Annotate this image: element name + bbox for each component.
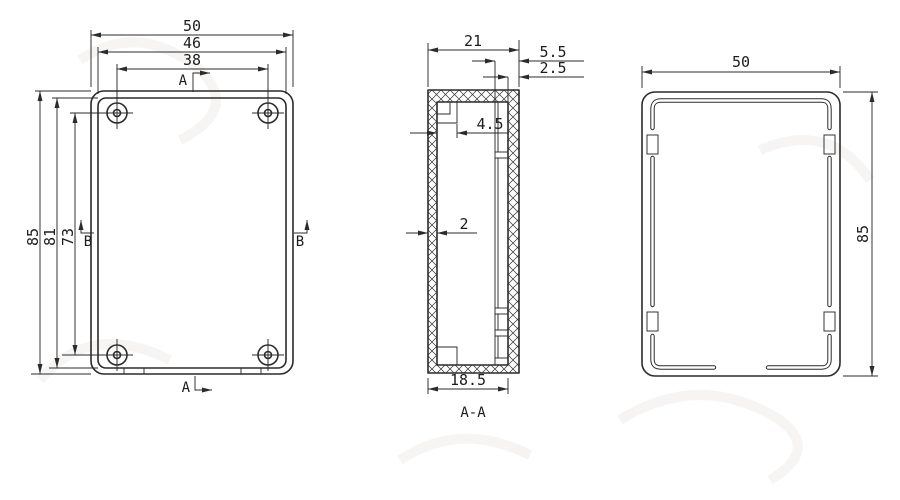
dim-value-2: 2 — [459, 215, 468, 233]
dim-value-85: 85 — [24, 228, 42, 246]
section-marker-b-left: B — [81, 220, 94, 250]
section-lip-wall — [495, 102, 498, 358]
dim-value-73: 73 — [59, 228, 77, 246]
section-letter: A — [179, 73, 188, 89]
section-boss-top — [437, 102, 457, 123]
front-bottom-ribs — [124, 368, 261, 374]
drawing-svg: 50 46 38 85 81 73 — [0, 0, 900, 500]
section-marker-a-bottom: A — [182, 376, 212, 396]
dim-side-height: 85 — [843, 92, 878, 376]
section-title: A-A — [460, 405, 486, 421]
dim-section-front-wall: 2 — [406, 215, 477, 233]
side-view: 50 85 — [642, 53, 878, 376]
side-outer-outline — [642, 92, 840, 376]
dim-value-46: 46 — [183, 34, 201, 52]
dim-section-depth: 21 — [428, 32, 519, 87]
screw-hole-bottom-right — [252, 339, 284, 371]
dim-value-38: 38 — [183, 51, 201, 69]
dim-value-81: 81 — [41, 228, 59, 246]
watermark-pattern — [40, 42, 870, 480]
dim-value-50: 50 — [183, 17, 201, 35]
dim-value-50: 50 — [732, 53, 750, 71]
section-letter: B — [84, 234, 92, 250]
dim-value-85: 85 — [854, 225, 872, 243]
section-letter: B — [296, 234, 304, 250]
section-outer-outline — [428, 90, 519, 373]
technical-drawing-canvas: 50 46 38 85 81 73 — [0, 0, 900, 500]
dim-section-boss-width: 4.5 — [410, 115, 509, 138]
dim-section-inner-depth: 18.5 — [428, 371, 508, 394]
section-boss-bottom — [437, 347, 457, 365]
section-cavity-outline — [437, 102, 508, 365]
section-letter: A — [182, 380, 191, 396]
screw-hole-top-right — [252, 64, 284, 129]
dim-side-width: 50 — [642, 53, 840, 88]
dim-value-2-5: 2.5 — [539, 59, 566, 77]
side-clip-windows — [647, 135, 835, 331]
dim-value-21: 21 — [464, 32, 482, 50]
section-lip-connectors — [495, 152, 508, 365]
section-marker-b-right: B — [294, 220, 307, 250]
section-hatched-walls — [428, 90, 519, 373]
front-view: 50 46 38 85 81 73 — [24, 17, 307, 396]
dim-front-hole-spacing-v: 73 — [59, 113, 77, 355]
section-view: 21 5.5 2.5 4.5 2 — [406, 32, 584, 421]
screw-hole-top-left — [70, 64, 133, 129]
dim-value-18-5: 18.5 — [450, 371, 486, 389]
dim-front-hole-spacing-h: 38 — [117, 51, 268, 69]
dim-value-4-5: 4.5 — [476, 115, 503, 133]
